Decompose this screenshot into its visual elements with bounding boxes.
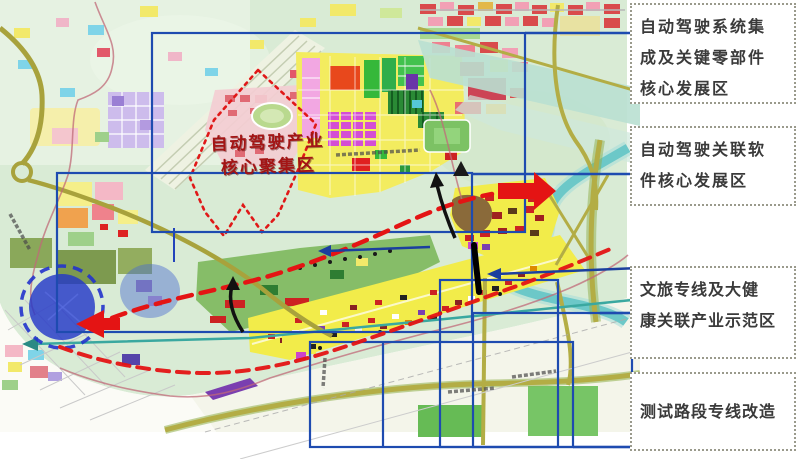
callout-3-line2: 康关联产业示范区 bbox=[640, 305, 786, 336]
core-zone-label: 自动驾驶产业 核心聚集区 bbox=[197, 129, 339, 182]
core-zone-label-line2: 核心聚集区 bbox=[198, 153, 339, 182]
callout-box-1: 自动驾驶系统集 成及关键零部件 核心发展区 bbox=[630, 3, 796, 104]
screenshot-root: 自动驾驶产业 核心聚集区 自动驾驶系统集 成及关键零部件 核心发展区 自动驾驶关… bbox=[0, 0, 800, 459]
callout-box-4: 测试路段专线改造 bbox=[630, 372, 796, 451]
callout-1-line3: 核心发展区 bbox=[640, 73, 786, 104]
callout-box-2: 自动驾驶关联软 件核心发展区 bbox=[630, 126, 796, 206]
callout-3-line1: 文旅专线及大健 bbox=[640, 274, 786, 305]
callout-1-line2: 成及关键零部件 bbox=[640, 42, 786, 73]
callout-1-line1: 自动驾驶系统集 bbox=[640, 11, 786, 42]
callout-box-3: 文旅专线及大健 康关联产业示范区 bbox=[630, 266, 796, 359]
callout-2-line2: 件核心发展区 bbox=[640, 165, 786, 196]
core-zone-label-line1: 自动驾驶产业 bbox=[197, 129, 338, 158]
callout-2-line1: 自动驾驶关联软 bbox=[640, 134, 786, 165]
callout-4-line1: 测试路段专线改造 bbox=[640, 396, 776, 427]
